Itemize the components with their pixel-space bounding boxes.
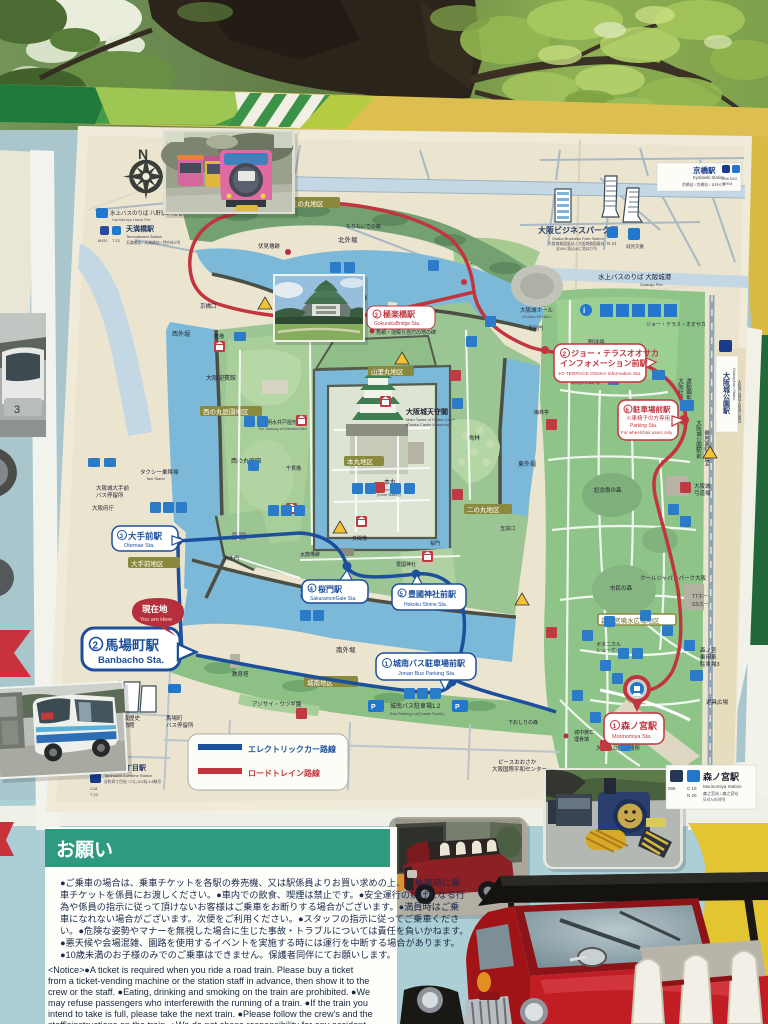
svg-text:クールジャパンパーク大阪: クールジャパンパーク大阪 [640,574,707,582]
svg-text:Parking Sta.: Parking Sta. [630,423,657,429]
svg-text:車チケットを係員にお渡しください。●車内での飲食、喫煙は禁止: 車チケットを係員にお渡しください。●車内での飲食、喫煙は禁止です。●安全運行の妨… [60,889,465,900]
svg-text:You are Here: You are Here [140,617,172,623]
svg-text:アジサイ・ウツギ園: アジサイ・ウツギ園 [252,700,302,708]
svg-text:駐車場3: 駐車場3 [700,660,720,668]
svg-text:豊國神社前駅: 豊國神社前駅 [408,589,457,599]
svg-text:多聞櫓: 多聞櫓 [352,535,367,542]
svg-text:車になれない場合がございます。次便をご利用ください。●スタッ: 車になれない場合がございます。次便をご利用ください。●スタッフの指示に従ってご乗… [60,913,459,924]
svg-text:P: P [371,704,376,711]
svg-text:市民の森: 市民の森 [610,584,633,592]
svg-text:為や係員の指示に従って頂けないお客様はご乗車をお断りする場合: 為や係員の指示に従って頂けないお客様はご乗車をお断りする場合がございます。●満員… [60,901,459,912]
svg-text:●ご乗車の場合は、乗車チケットを各駅の券売機、又は駅係員より: ●ご乗車の場合は、乗車チケットを各駅の券売機、又は駅係員よりお買い求めの上、ご乗… [60,877,460,888]
svg-text:伏見櫓跡: 伏見櫓跡 [258,242,281,250]
svg-text:大阪城公園駅前: 大阪城公園駅前 [695,419,702,460]
svg-text:T 23: T 23 [90,792,99,797]
svg-text:天満橋站 / 天満橋站 / 텐만바시역: 天満橋站 / 天満橋站 / 텐만바시역 [126,240,181,245]
svg-text:●10歳未満のお子様のみでのご乗車はできません。保護者同伴に: ●10歳未満のお子様のみでのご乗車はできません。保護者同伴にてお願いします。 [60,949,396,960]
svg-text:本丸地区: 本丸地区 [347,457,374,466]
svg-text:馬場町: 馬場町 [166,714,183,722]
svg-text:バス停留所: バス停留所 [96,491,124,499]
svg-text:エレクトリックカー路線: エレクトリックカー路線 [248,744,336,754]
svg-text:may refuse passengers who inte: may refuse passengers who interferewith … [48,998,368,1008]
svg-text:C 19: C 19 [687,786,697,791]
svg-text:ボタニカル: ボタニカル [596,641,621,648]
svg-text:大阪府庁: 大阪府庁 [92,504,115,512]
svg-text:二の丸地区: 二の丸地区 [467,505,500,514]
svg-text:from a ticket-vending machine: from a ticket-vending machine or the sta… [48,976,369,986]
svg-text:梅林亭: 梅林亭 [534,409,549,416]
svg-text:京橋駅: 京橋駅 [693,165,716,175]
svg-text:青屋門: 青屋門 [528,325,543,332]
svg-text:大阪城大手前: 大阪城大手前 [96,484,130,492]
svg-text:天満橋駅: 天満橋駅 [126,224,155,233]
svg-text:大阪ビジネスパーク駅: 大阪ビジネスパーク駅 [538,225,619,235]
svg-text:3: 3 [14,404,20,416]
svg-text:西外堀: 西外堀 [172,330,190,338]
svg-text:i: i [583,306,585,315]
svg-text:crew or the staff. ●Eating, dr: crew or the staff. ●Eating, drinking and… [48,987,370,997]
svg-text:Bus Parking Lot(Castle South): Bus Parking Lot(Castle South) [390,711,444,716]
svg-text:弓道場: 弓道場 [694,489,711,497]
svg-text:桜門駅: 桜門駅 [318,584,343,594]
svg-text:T 22: T 22 [112,238,121,243]
svg-text:もりもいでの森: もりもいでの森 [346,223,381,230]
svg-text:城中焼亡: 城中焼亡 [574,729,594,736]
svg-text:京橋口: 京橋口 [200,302,217,310]
svg-text:森ノ宮駅: 森ノ宮駅 [621,720,658,731]
svg-text:京橋站 / 京橋站 / 교바시역: 京橋站 / 京橋站 / 교바시역 [682,182,726,187]
svg-text:JO-TERRACE OSAKA Information S: JO-TERRACE OSAKA Information Sta. [558,371,641,377]
svg-text:太鼓櫓跡: 太鼓櫓跡 [300,551,320,558]
svg-text:Osakajokoen Station: Osakajokoen Station [732,368,736,400]
svg-text:intend to take is full, please: intend to take is full, please take the … [48,1009,373,1019]
svg-text:(Osaka Castle Museum): (Osaka Castle Museum) [406,422,450,427]
svg-text:※車椅子の方専用: ※車椅子の方専用 [626,414,670,422]
svg-text:3: 3 [120,533,124,540]
svg-text:大阪商務園區站 / 大阪商務園區站: 大阪商務園區站 / 大阪商務園區站 [548,241,605,246]
svg-text:Morinomiya Station: Morinomiya Station [703,784,742,789]
svg-text:現在地: 現在地 [142,604,168,614]
svg-text:大阪城天守閣: 大阪城天守閣 [406,407,448,416]
svg-text:水上バスのりば 大阪城港: 水上バスのりば 大阪城港 [598,272,672,281]
svg-text:The Treasury of Kinmeisui Well: The Treasury of Kinmeisui Well [258,427,307,431]
svg-text:1: 1 [613,723,617,730]
svg-text:バス停留所: バス停留所 [166,721,194,729]
svg-text:ジョー・テラスオオサカ: ジョー・テラスオオサカ [571,349,659,358]
svg-text:P: P [455,704,460,711]
svg-text:Taxi Stand: Taxi Stand [146,476,165,481]
svg-text:大手前駅: 大手前駅 [128,531,163,541]
svg-text:インフォメーション前駅: インフォメーション前駅 [560,358,649,368]
svg-text:大阪迎賓館: 大阪迎賓館 [206,374,236,382]
svg-text:梅林: 梅林 [468,434,480,442]
svg-text:い。●危険な姿勢やマナーを無視した場合に生じた事故・トラブル: い。●危険な姿勢やマナーを無視した場合に生じた事故・トラブルについては責任を負い… [60,925,468,936]
svg-text:大阪城公園站/大阪城公園站: 大阪城公園站/大阪城公園站 [737,379,742,423]
svg-text:大阪城ホール: 大阪城ホール [520,306,554,314]
svg-text:ジョー・テラス・オオサカ: ジョー・テラス・オオサカ [646,322,706,328]
svg-text:城南バス駐車場1.2: 城南バス駐車場1.2 [390,702,441,710]
svg-text:森ノ宮: 森ノ宮 [700,646,717,654]
svg-text:南外堀: 南外堀 [336,645,356,654]
svg-text:staff'sinstructions on the tra: staff'sinstructions on the train. ●We do… [48,1020,366,1024]
svg-text:森之宮站 / 森之宮站: 森之宮站 / 森之宮站 [703,790,738,796]
svg-text:N 20: N 20 [687,793,697,798]
svg-text:記念樹の森: 記念樹の森 [594,486,622,494]
svg-text:Kyobashi Station: Kyobashi Station [693,175,725,180]
svg-text:Osakajo Pier: Osakajo Pier [640,282,664,287]
svg-text:For wheelchair users only: For wheelchair users only [621,430,673,435]
svg-text:谷町四丁目站 / 口し9JJ站 4:8線号: 谷町四丁目站 / 口し9JJ站 4:8線号 [104,779,161,784]
svg-text:埋骨墳: 埋骨墳 [574,736,589,743]
svg-text:008 N22: 008 N22 [722,176,738,181]
svg-text:Morinomiya Sta.: Morinomiya Sta. [612,734,652,740]
svg-text:森ノ宮駅: 森ノ宮駅 [703,771,740,782]
svg-text:006: 006 [668,786,676,791]
svg-text:ロードトレイン路線: ロードトレイン路線 [248,768,320,778]
svg-text:Hokoku Shrine Sta.: Hokoku Shrine Sta. [404,602,447,608]
svg-text:2: 2 [563,351,567,358]
svg-text:Otemae Sta.: Otemae Sta. [124,543,155,549]
svg-text:城見交番: 城見交番 [626,243,644,250]
svg-text:KH04: KH04 [723,182,733,186]
svg-text:全404 見込IAに思はりち: 全404 見込IAに思はりち [556,246,598,251]
svg-text:6H31: 6H31 [98,238,108,243]
svg-text:城南バス駐車場前駅: 城南バス駐車場前駅 [393,658,466,668]
svg-text:東外堀: 東外堀 [518,460,536,468]
svg-text:Osaka Business Park Station: Osaka Business Park Station [552,236,604,241]
svg-text:下おしりの森: 下おしりの森 [508,719,538,726]
svg-text:秀頼・淀殿ら自刃の地の碑: 秀頼・淀殿ら自刃の地の碑 [376,329,436,336]
svg-text:山里丸地区: 山里丸地区 [371,367,404,376]
svg-text:大手前地区: 大手前地区 [131,559,164,568]
svg-text:乾櫓: 乾櫓 [214,333,224,340]
svg-text:お願い: お願い [56,839,113,861]
svg-text:●悪天候や会場混雑、園路を使用するイベントを実施する時には運: ●悪天候や会場混雑、園路を使用するイベントを実施する時には運行を中断する場合があ… [60,937,460,948]
svg-text:大阪国際平和センター: 大阪国際平和センター [492,765,547,773]
svg-text:桜門: 桜門 [430,540,440,547]
svg-text:豊國神社: 豊國神社 [396,561,416,568]
svg-text:<Notice>●A ticket is required: <Notice>●A ticket is required when you r… [48,965,354,975]
svg-text:馬場町駅: 馬場町駅 [105,637,159,653]
svg-text:N 21: N 21 [607,241,617,246]
svg-text:C18: C18 [90,786,98,791]
svg-text:教育塔: 教育塔 [232,670,249,678]
svg-text:Banbacho Sta.: Banbacho Sta. [98,655,164,666]
svg-text:2: 2 [93,641,99,652]
svg-text:駐車場前駅: 駐車場前駅 [633,404,671,414]
svg-text:Hachikenya Hama Pier: Hachikenya Hama Pier [112,218,152,222]
svg-text:GokurakuBridge Sta.: GokurakuBridge Sta. [374,321,420,327]
svg-text:乗用車: 乗用車 [700,653,717,661]
svg-text:ピースおおさか: ピースおおさか [498,759,537,766]
svg-text:北外堀: 北外堀 [338,235,358,244]
svg-text:Temmabashi Station: Temmabashi Station [126,234,162,239]
svg-text:Jonan Bus Parking Sta.: Jonan Bus Parking Sta. [398,671,456,677]
svg-text:玉造口: 玉造口 [500,525,515,532]
svg-text:大阪城: 大阪城 [694,482,711,490]
svg-text:西の丸庭園地区: 西の丸庭園地区 [203,407,249,416]
svg-text:OSAKA-JO HALL: OSAKA-JO HALL [522,315,552,319]
svg-text:タクシー乗降場: タクシー乗降場 [140,468,179,476]
svg-text:千貫櫓: 千貫櫓 [286,465,301,472]
svg-text:大手門: 大手門 [224,555,239,562]
svg-text:SakuramonGate Sta.: SakuramonGate Sta. [310,596,357,602]
svg-text:極楽橋駅: 極楽橋駅 [382,309,416,319]
svg-text:大阪城公園駅: 大阪城公園駅 [722,371,730,415]
svg-text:遊具広場: 遊具広場 [706,698,729,706]
svg-text:1: 1 [385,661,389,668]
svg-text:모리노미야역: 모리노미야역 [703,796,725,802]
